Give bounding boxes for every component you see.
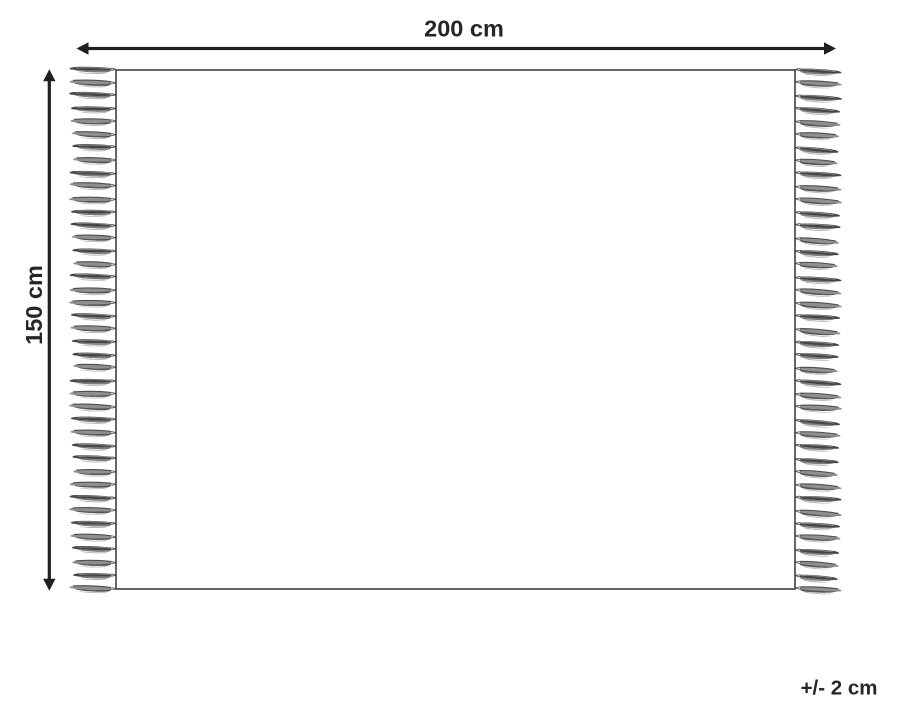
svg-text:+/- 2 cm: +/- 2 cm [801, 677, 878, 700]
svg-text:200 cm: 200 cm [424, 16, 504, 42]
svg-text:150 cm: 150 cm [21, 265, 47, 345]
